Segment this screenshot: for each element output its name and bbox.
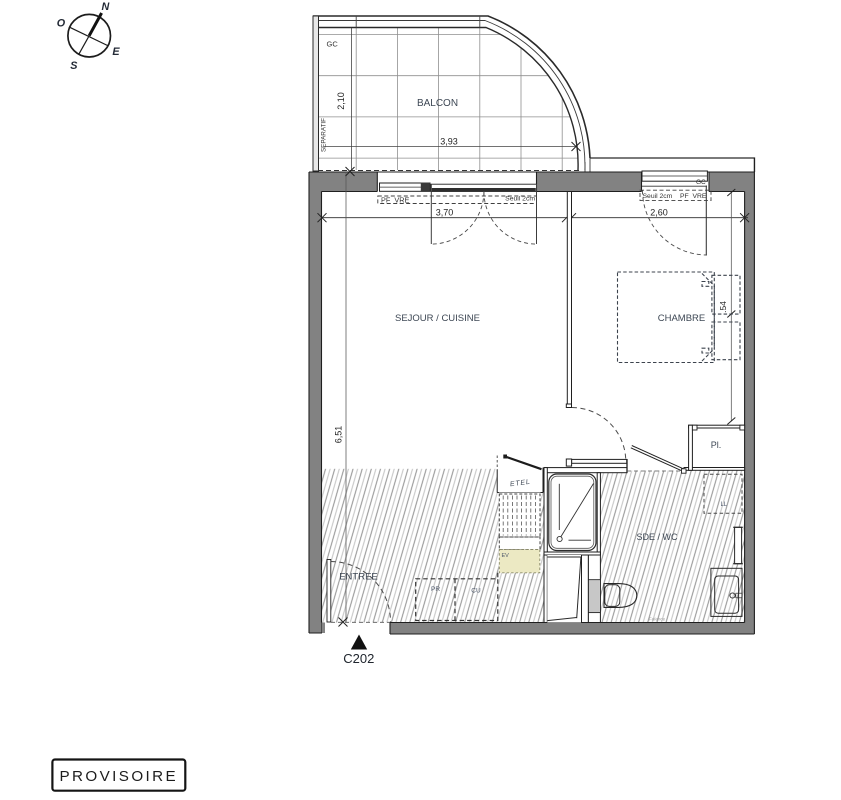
- svg-text:S: S: [70, 60, 78, 72]
- svg-text:BALCON: BALCON: [417, 98, 458, 109]
- svg-text:PR: PR: [431, 586, 440, 593]
- svg-text:PROVISOIRE: PROVISOIRE: [60, 768, 179, 785]
- svg-text:.54: .54: [718, 301, 728, 313]
- svg-text:Pl.: Pl.: [711, 440, 722, 450]
- svg-text:2,10: 2,10: [336, 92, 346, 110]
- svg-text:CHAMBRE: CHAMBRE: [658, 313, 706, 324]
- svg-text:2,60: 2,60: [650, 207, 668, 217]
- svg-text:6,51: 6,51: [334, 426, 344, 444]
- svg-text:O: O: [57, 18, 66, 30]
- svg-text:C202: C202: [343, 651, 374, 666]
- svg-text:E: E: [112, 46, 120, 58]
- svg-text:GC: GC: [327, 40, 339, 49]
- svg-text:3,70: 3,70: [436, 207, 454, 217]
- svg-text:ENTREE: ENTREE: [339, 572, 378, 583]
- svg-text:PF VRE: PF VRE: [381, 195, 410, 204]
- svg-text:Seuil 2cm: Seuil 2cm: [643, 193, 673, 200]
- svg-text:LL: LL: [720, 502, 727, 508]
- svg-text:3,93: 3,93: [440, 137, 458, 147]
- svg-text:Faïence: Faïence: [649, 617, 666, 622]
- svg-text:Seuil 2cm: Seuil 2cm: [505, 195, 535, 202]
- svg-text:N: N: [101, 1, 109, 13]
- svg-text:SEJOUR / CUISINE: SEJOUR / CUISINE: [395, 313, 480, 324]
- svg-text:PF VRE: PF VRE: [680, 193, 707, 200]
- svg-text:EV: EV: [502, 553, 510, 559]
- svg-text:CU: CU: [471, 587, 481, 594]
- svg-text:SDE / WC: SDE / WC: [636, 532, 678, 542]
- svg-text:GC: GC: [696, 179, 706, 186]
